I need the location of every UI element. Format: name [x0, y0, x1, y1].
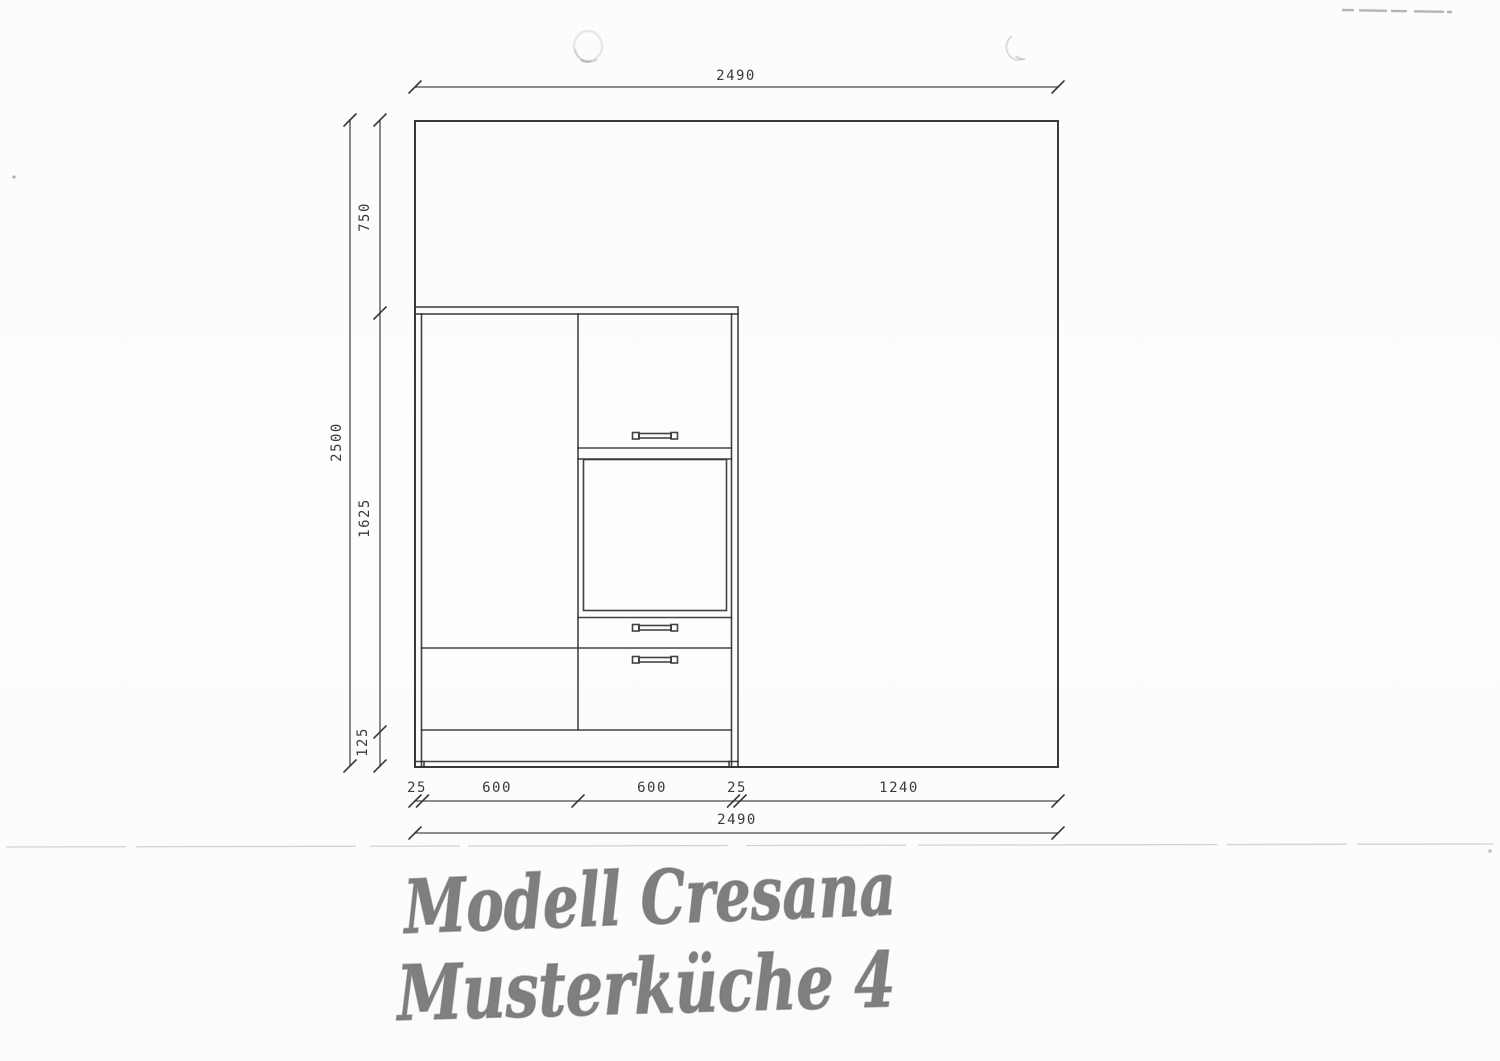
dimension-left-segments: 750 1625 125	[355, 114, 386, 772]
appliance-door-handle-icon	[633, 433, 678, 440]
oven-niche	[584, 460, 727, 611]
handwritten-notes: Modell Cresana Musterküche 4	[394, 846, 898, 1038]
dimension-top-width: 2490	[409, 68, 1064, 93]
scan-speck-right	[1488, 849, 1492, 853]
dimension-bottom-total: 2490	[409, 812, 1064, 839]
wall-outline	[415, 121, 1058, 767]
dim-label-bottom-25a: 25	[407, 780, 427, 796]
scan-streak-top-right	[1342, 10, 1452, 12]
dim-label-bottom-600a: 600	[482, 780, 512, 796]
punch-hole-left-icon	[574, 31, 602, 62]
dimension-bottom-segments: 25 600 600 25 1240	[407, 780, 1064, 807]
scanned-page: 2490 2500 750 1625 125 25 600 600 25 124…	[0, 0, 1500, 1061]
dim-label-left-125: 125	[355, 727, 371, 757]
dim-label-bottom-2490: 2490	[717, 812, 757, 828]
dim-label-left-1625: 1625	[357, 498, 373, 538]
dimension-left-total: 2500	[329, 114, 356, 772]
tall-cabinet-unit	[415, 307, 738, 767]
dim-label-left-750: 750	[357, 202, 373, 232]
scan-artifacts	[6, 10, 1494, 853]
cabinet-top-panel	[415, 307, 738, 314]
drawer-2-handle-icon	[633, 657, 678, 664]
technical-drawing: 2490 2500 750 1625 125 25 600 600 25 124…	[0, 0, 1500, 1061]
drawer-1-handle-icon	[633, 625, 678, 632]
dim-label-bottom-1240: 1240	[879, 780, 919, 796]
dim-label-top-2490: 2490	[716, 68, 756, 84]
handwritten-model-name: Modell Cresana	[400, 846, 897, 951]
dim-label-bottom-25b: 25	[727, 780, 747, 796]
scan-speck-left	[12, 175, 15, 178]
dim-label-left-2500: 2500	[329, 422, 345, 462]
handwritten-kitchen-name: Musterküche 4	[394, 935, 897, 1038]
scan-line-artifact	[6, 844, 1494, 847]
punch-hole-right-icon	[1006, 36, 1025, 60]
dim-label-bottom-600b: 600	[637, 780, 667, 796]
